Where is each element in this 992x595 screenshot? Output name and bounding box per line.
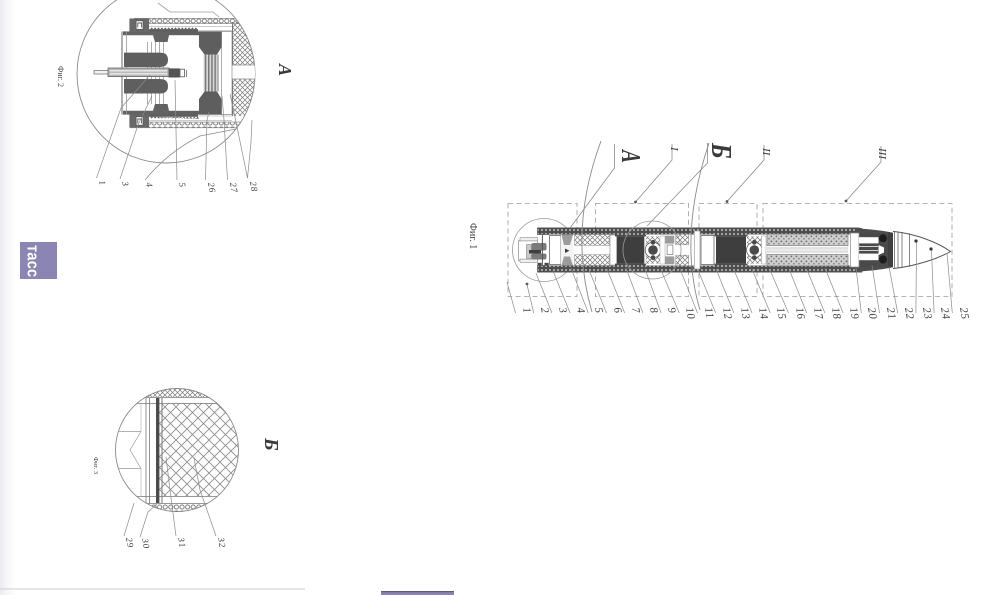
svg-text:29: 29 [124,537,136,549]
svg-text:13: 13 [738,306,752,320]
svg-text:32: 32 [216,536,228,549]
svg-text:25: 25 [957,306,971,320]
svg-text:22: 22 [902,306,916,320]
svg-text:Фиг. 1: Фиг. 1 [467,223,478,249]
svg-text:А: А [615,148,645,163]
svg-text:14: 14 [756,306,770,320]
svg-text:27: 27 [228,182,240,194]
svg-text:31: 31 [176,536,188,549]
svg-text:Б: Б [706,142,738,159]
svg-text:Фиг. 3: Фиг. 3 [92,457,99,474]
svg-text:19: 19 [847,306,861,320]
svg-text:11: 11 [702,306,716,319]
svg-text:10: 10 [683,306,697,320]
svg-text:17: 17 [811,306,825,320]
svg-text:21: 21 [884,306,898,320]
svg-text:24: 24 [938,306,952,320]
svg-text:Фиг. 2: Фиг. 2 [56,66,65,87]
svg-text:23: 23 [920,306,934,320]
svg-text:А: А [275,63,295,76]
svg-text:II: II [760,147,772,157]
svg-text:28: 28 [248,181,260,193]
svg-text:16: 16 [793,306,807,320]
svg-text:26: 26 [206,182,218,194]
svg-text:20: 20 [865,306,879,320]
svg-text:12: 12 [720,306,734,320]
svg-text:15: 15 [774,306,788,320]
svg-text:Б: Б [260,437,282,451]
svg-text:III: III [876,147,888,160]
svg-text:18: 18 [829,306,843,320]
svg-text:тасс: тасс [23,245,41,277]
svg-text:30: 30 [140,537,152,550]
